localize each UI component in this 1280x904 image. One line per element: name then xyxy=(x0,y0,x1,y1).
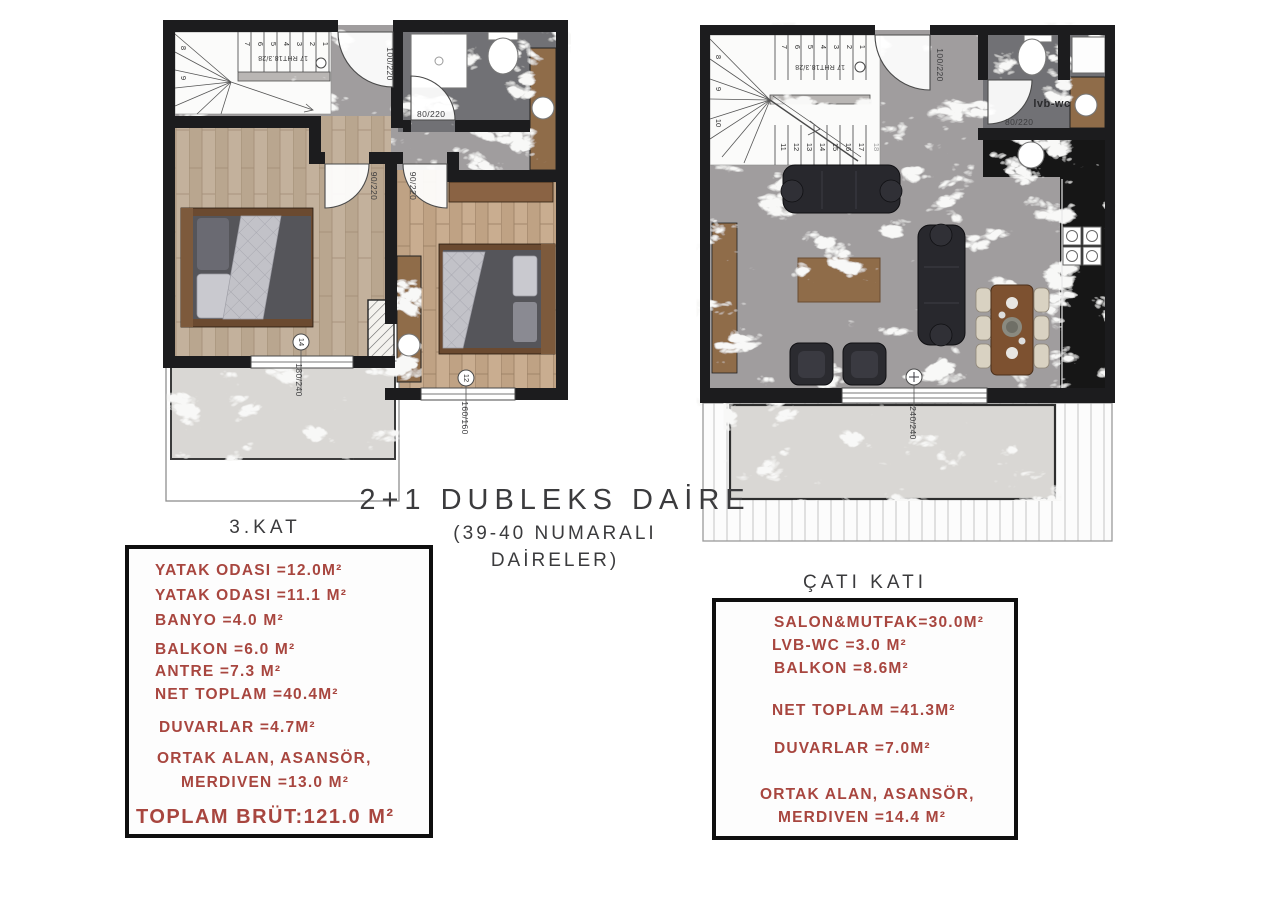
sheet-title-line3: DAİRELER) xyxy=(320,550,790,572)
basin xyxy=(1075,94,1097,116)
stair-step-number: 10 xyxy=(714,119,723,127)
stair-spec-note: 17 RHT18.3/28 xyxy=(258,54,308,61)
bedroom2-door-size: 90/220 xyxy=(408,172,418,200)
plan-roof-floor: 1 2 3 4 5 6 7 8 9 10 11 12 13 14 15 16 1… xyxy=(700,25,1115,541)
stair-step-number: 3 xyxy=(832,45,841,49)
tv-unit xyxy=(712,223,737,373)
sheet-title-line1: 2+1 DUBLEKS DAİRE xyxy=(320,484,790,517)
area-line: YATAK ODASI =11.1 M² xyxy=(129,587,429,605)
stair-step-number: 11 xyxy=(779,143,788,151)
balcony-sliding-door xyxy=(842,388,987,403)
stair-step-number: 18 xyxy=(872,143,881,151)
stair-step-number: 8 xyxy=(179,46,188,50)
area-line: NET TOPLAM =41.3M² xyxy=(716,702,1014,720)
stair-step-number: 1 xyxy=(858,45,867,49)
stair-step-number: 13 xyxy=(805,143,814,151)
stair-step-number: 9 xyxy=(179,76,188,80)
stair-step-number: 7 xyxy=(780,45,789,49)
basin xyxy=(532,97,554,119)
dresser xyxy=(449,182,553,202)
stair-step-number: 2 xyxy=(845,45,854,49)
area-line: ORTAK ALAN, ASANSÖR, xyxy=(716,786,1014,804)
sofa-large xyxy=(781,165,902,213)
area-line: ANTRE =7.3 M² xyxy=(129,663,429,681)
area-line: LVB-WC =3.0 M² xyxy=(716,637,1014,655)
left-area-table: YATAK ODASI =12.0M² YATAK ODASI =11.1 M²… xyxy=(125,545,433,838)
balcony-door-size: 240/240 xyxy=(908,406,918,440)
stair-step-number: 7 xyxy=(243,42,252,46)
bedroom1-door-size: 90/220 xyxy=(369,172,379,200)
balcony-marble-floor xyxy=(171,365,395,459)
area-line: MERDIVEN =13.0 M² xyxy=(129,774,429,792)
sheet-title-line2: (39-40 NUMARALI xyxy=(320,523,790,545)
total-gross-area: TOPLAM BRÜT:121.0 M² xyxy=(129,806,429,829)
bed-double xyxy=(439,244,555,354)
stair-step-number: 4 xyxy=(819,45,828,49)
niche-basin xyxy=(398,334,420,356)
area-line: MERDIVEN =14.4 M² xyxy=(716,809,1014,827)
staircase: 1 2 3 4 5 6 7 8 9 10 11 12 13 14 15 16 1… xyxy=(710,35,881,165)
stair-step-number: 3 xyxy=(295,42,304,46)
stair-step-number: 6 xyxy=(793,45,802,49)
toilet xyxy=(488,38,518,74)
right-floor-heading: ÇATI KATI xyxy=(715,572,1015,594)
stair-spec-note: 17 RHT18.3/28 xyxy=(795,63,845,70)
right-area-table: SALON&MUTFAK=30.0M² LVB-WC =3.0 M² BALKO… xyxy=(712,598,1018,840)
stair-step-number: 15 xyxy=(831,143,840,151)
entry-door-size: 100/220 xyxy=(385,47,395,81)
stair-step-number: 1 xyxy=(321,42,330,46)
stair-step-number: 12 xyxy=(792,143,801,151)
toilet xyxy=(1018,39,1046,75)
area-line: ORTAK ALAN, ASANSÖR, xyxy=(129,750,429,768)
area-line: DUVARLAR =4.7M² xyxy=(129,719,429,737)
kitchen-sink xyxy=(1018,142,1044,168)
plan-3rd-floor: 1 2 3 4 5 6 7 8 9 17 RHT18.3/28 xyxy=(163,20,568,501)
armchair xyxy=(843,343,886,385)
stair-step-number: 8 xyxy=(714,55,723,59)
stair-step-number: 5 xyxy=(806,45,815,49)
area-line: DUVARLAR =7.0M² xyxy=(716,740,1014,758)
stair-step-number: 6 xyxy=(256,42,265,46)
vanity-niche xyxy=(397,256,421,382)
stair-step-number: 14 xyxy=(818,143,827,151)
lvb-wc-label: lvb-wc xyxy=(1033,98,1070,110)
area-line: NET TOPLAM =40.4M² xyxy=(129,686,429,704)
floor-plan-sheet: 1 2 3 4 5 6 7 8 9 17 RHT18.3/28 xyxy=(0,0,1280,904)
sofa-small xyxy=(918,224,965,346)
armchair xyxy=(790,343,833,385)
shower-niche xyxy=(1072,37,1105,73)
bed-double xyxy=(181,208,313,327)
window-tag: 14 xyxy=(297,338,306,346)
stair-step-number: 9 xyxy=(714,87,723,91)
sheet-title: 2+1 DUBLEKS DAİRE (39-40 NUMARALI DAİREL… xyxy=(320,484,790,572)
area-line: BALKON =8.6M² xyxy=(716,660,1014,678)
stair-step-number: 2 xyxy=(308,42,317,46)
bath-door-size: 80/220 xyxy=(417,109,445,119)
dining-set xyxy=(976,285,1049,375)
area-line: SALON&MUTFAK=30.0M² xyxy=(716,614,1014,632)
window-tag: 12 xyxy=(462,374,471,382)
stair-step-number: 5 xyxy=(269,42,278,46)
bedroom1-window-size: 180/240 xyxy=(294,363,304,397)
staircase: 1 2 3 4 5 6 7 8 9 17 RHT18.3/28 xyxy=(175,32,331,114)
bedroom2-window-size: 160/160 xyxy=(460,401,470,435)
area-line: BALKON =6.0 M² xyxy=(129,641,429,659)
stair-step-number: 17 xyxy=(857,143,866,151)
stair-step-number: 4 xyxy=(282,42,291,46)
lvbwc-door-size: 80/220 xyxy=(1005,117,1033,127)
rug xyxy=(798,258,880,302)
stair-step-number: 16 xyxy=(844,143,853,151)
area-line: BANYO =4.0 M² xyxy=(129,612,429,630)
entry-door-size: 100/220 xyxy=(935,48,945,82)
